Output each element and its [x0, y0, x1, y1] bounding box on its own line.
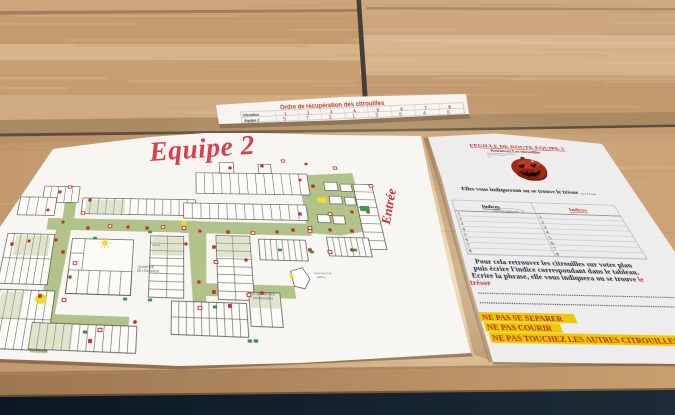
svg-text:2: 2: [540, 220, 545, 224]
svg-text:4: 4: [462, 227, 466, 232]
svg-text:6: 6: [550, 241, 555, 246]
svg-text:5: 5: [463, 232, 467, 237]
svg-text:Entrée: Entrée: [378, 187, 399, 226]
svg-text:1: 1: [457, 212, 461, 216]
svg-text:4: 4: [423, 111, 427, 118]
svg-text:8: 8: [447, 110, 451, 117]
svg-text:7: 7: [553, 247, 558, 252]
svg-text:Equipe 2: Equipe 2: [244, 118, 260, 123]
svg-text:2: 2: [328, 114, 332, 121]
svg-text:5: 5: [283, 116, 287, 123]
svg-text:6: 6: [399, 112, 403, 118]
svg-text:5: 5: [548, 236, 553, 241]
svg-text:1: 1: [538, 215, 543, 219]
svg-text:NE PAS SE SEPARER: NE PAS SE SEPARER: [481, 314, 565, 325]
svg-text:Dr: Dr: [488, 156, 492, 159]
svg-text:Elles vous indiqueront ou se t: Elles vous indiqueront ou se trouve le t…: [461, 187, 598, 196]
svg-text:7: 7: [305, 115, 309, 122]
svg-text:7: 7: [467, 243, 471, 248]
svg-text:8: 8: [468, 249, 472, 254]
svg-text:3: 3: [460, 222, 464, 226]
svg-text:2: 2: [458, 217, 462, 221]
svg-text:NE PAS COURIR: NE PAS COURIR: [486, 324, 555, 335]
svg-text:4: 4: [545, 230, 550, 234]
svg-text:1: 1: [352, 113, 356, 120]
svg-text:Citrouilles: Citrouilles: [242, 113, 259, 118]
svg-text:NE PAS TOUCHEZ LES AUTRES CITR: NE PAS TOUCHEZ LES AUTRES CITROUILLES: [491, 334, 675, 347]
svg-text:Equipe 2: Equipe 2: [147, 129, 256, 167]
svg-text:6: 6: [465, 238, 469, 243]
svg-text:trésor: trésor: [469, 279, 493, 288]
svg-text:Indices: Indices: [568, 207, 589, 213]
svg-text:Retrouvez Les citrouilles: Retrouvez Les citrouilles: [490, 148, 542, 154]
svg-text:3: 3: [375, 112, 379, 119]
